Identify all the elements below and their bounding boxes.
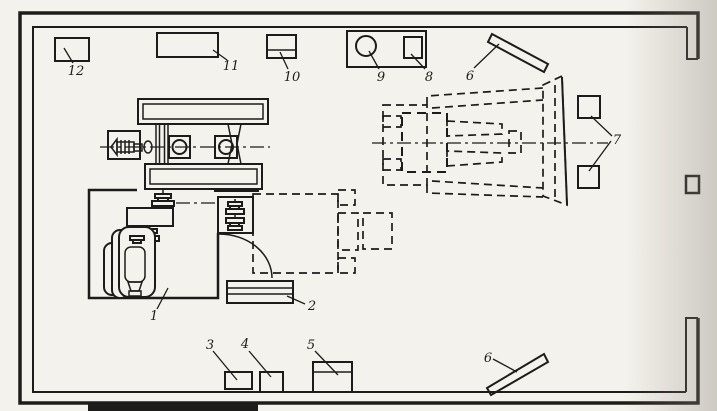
door-swing-arc <box>219 234 272 278</box>
ramp-bar-top: 6 <box>466 34 548 84</box>
ramp-bar-bottom: 6 <box>484 351 548 395</box>
label-7: 7 <box>613 133 622 148</box>
barrel-upper <box>447 121 502 136</box>
label-10: 10 <box>284 70 301 85</box>
top-beam <box>427 88 543 105</box>
gearbox <box>127 208 173 226</box>
coupling-shaft-upper <box>152 189 174 208</box>
test-bench <box>100 99 270 189</box>
floor-plan-drawing: 12 11 10 9 8 6 <box>0 0 717 411</box>
floor-plan-scan: 12 11 10 9 8 6 <box>0 0 717 411</box>
label-5: 5 <box>307 338 315 353</box>
shelf-2: 2 <box>227 281 316 314</box>
unit-8 <box>404 37 422 58</box>
label-12: 12 <box>68 64 85 79</box>
room-walls <box>20 13 699 403</box>
cabinet-12: 12 <box>55 38 89 79</box>
label-8: 8 <box>425 70 433 85</box>
wall-outer <box>20 13 698 403</box>
cabinet-10: 10 <box>267 35 300 85</box>
floor-box-4: 4 <box>240 337 283 392</box>
gauge-9 <box>356 36 376 56</box>
floor-box-5: 5 <box>307 338 352 392</box>
label-6-bottom: 6 <box>484 351 492 366</box>
hull <box>383 105 427 185</box>
dashed-equipment-center <box>253 190 392 273</box>
label-6-top: 6 <box>466 69 474 84</box>
label-2: 2 <box>307 299 316 314</box>
barrel-lower <box>447 151 502 166</box>
scan-shadow-right <box>625 0 717 411</box>
dashed-vehicle-outline <box>372 76 608 205</box>
control-panel: 9 8 <box>347 31 433 85</box>
muzzle-snout <box>509 131 521 153</box>
electric-motor <box>104 227 155 298</box>
label-11: 11 <box>223 59 240 74</box>
door-coupling-bracket <box>176 197 253 233</box>
label-3: 3 <box>206 338 214 353</box>
label-1: 1 <box>150 309 158 324</box>
wall-inner <box>33 27 687 392</box>
label-9: 9 <box>377 70 385 85</box>
stands-7: 7 <box>578 96 622 188</box>
drive-head <box>108 131 152 159</box>
bench-11: 11 <box>157 33 239 74</box>
bench-left-column <box>156 124 168 164</box>
scan-edge-band <box>88 404 258 411</box>
label-4: 4 <box>240 337 249 352</box>
